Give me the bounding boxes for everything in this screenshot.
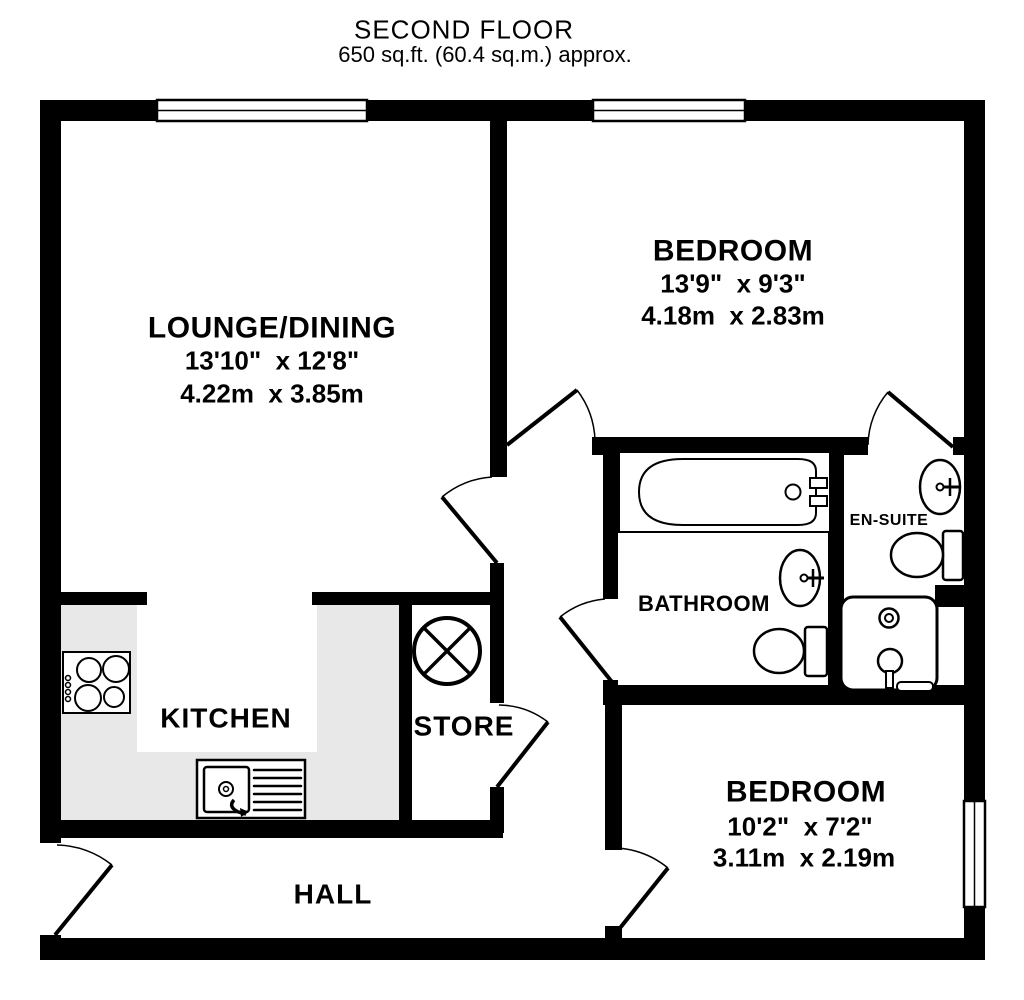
ensuite-door-icon — [868, 392, 953, 447]
water-cylinder-icon — [414, 618, 480, 684]
bedroom2-dims-metric: 3.11m x 2.19m — [713, 844, 895, 873]
plan-title: SECOND FLOOR — [354, 16, 574, 45]
kitchen-label: KITCHEN — [160, 704, 291, 735]
bathtub-icon — [619, 452, 830, 532]
store-label: STORE — [414, 712, 515, 743]
window-lounge-icon — [157, 100, 367, 121]
bathroom-label: BATHROOM — [638, 592, 770, 616]
bedroom2-door-icon — [612, 848, 668, 938]
bathroom-washbasin-icon — [780, 550, 824, 606]
shower-icon — [841, 597, 937, 691]
lounge-dims-imperial: 13'10" x 12'8" — [185, 347, 359, 376]
bedroom2-dims-imperial: 10'2" x 7'2" — [727, 813, 872, 842]
bathroom-door-icon — [560, 599, 612, 682]
kitchen-sink-icon — [197, 760, 305, 818]
ensuite-toilet-icon — [891, 531, 963, 580]
ensuite-label: EN-SUITE — [850, 512, 929, 530]
entrance-door-icon — [55, 845, 112, 935]
bedroom1-label: BEDROOM — [653, 235, 813, 268]
bedroom1-dims-metric: 4.18m x 2.83m — [641, 302, 825, 331]
lounge-label: LOUNGE/DINING — [148, 312, 396, 345]
bedroom1-door-icon — [507, 390, 595, 445]
plan-area-subtitle: 650 sq.ft. (60.4 sq.m.) approx. — [338, 43, 631, 67]
bedroom2-label: BEDROOM — [726, 776, 886, 809]
lounge-door-icon — [442, 477, 497, 563]
bathroom-toilet-icon — [754, 627, 827, 676]
floor-plan: SECOND FLOOR 650 sq.ft. (60.4 sq.m.) app… — [0, 0, 1024, 1000]
hob-icon — [63, 652, 130, 713]
lounge-dims-metric: 4.22m x 3.85m — [180, 380, 364, 409]
hall-label: HALL — [294, 880, 373, 911]
window-bedroom2-icon — [964, 801, 985, 907]
window-bedroom1-icon — [593, 100, 745, 121]
ensuite-washbasin-icon — [920, 460, 960, 514]
bedroom1-dims-imperial: 13'9" x 9'3" — [660, 270, 805, 299]
